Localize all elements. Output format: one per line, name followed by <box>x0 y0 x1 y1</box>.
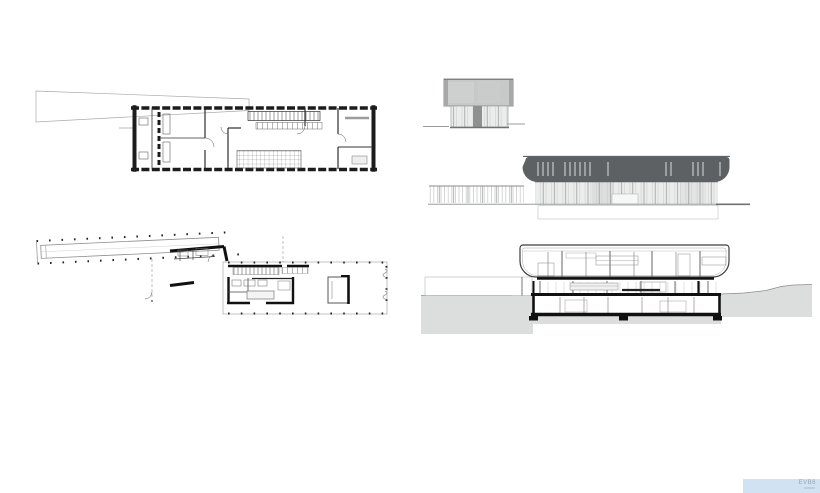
watermark-band: EVB6 <box>743 479 820 493</box>
ground-stair <box>228 266 309 275</box>
ground-floor-plan-drawing <box>36 231 387 314</box>
glazed-storey <box>535 182 718 204</box>
upper-floor-plan-drawing <box>36 91 377 172</box>
drawing-sheet: EVB6 <box>0 0 820 493</box>
long-elevation-drawing <box>428 156 750 219</box>
basement-outline <box>538 206 718 220</box>
roof-band <box>523 156 731 182</box>
long-section-drawing <box>421 245 812 334</box>
terrace-outline <box>425 277 532 296</box>
end-elevation-drawing <box>423 79 525 128</box>
stair-hatch <box>248 112 320 121</box>
watermark-subtext-mark <box>804 487 815 489</box>
architectural-drawings-canvas <box>0 0 820 493</box>
watermark-text: EVB6 <box>799 480 816 487</box>
section-ground-storey <box>534 281 719 294</box>
terrace-grid <box>237 151 301 169</box>
